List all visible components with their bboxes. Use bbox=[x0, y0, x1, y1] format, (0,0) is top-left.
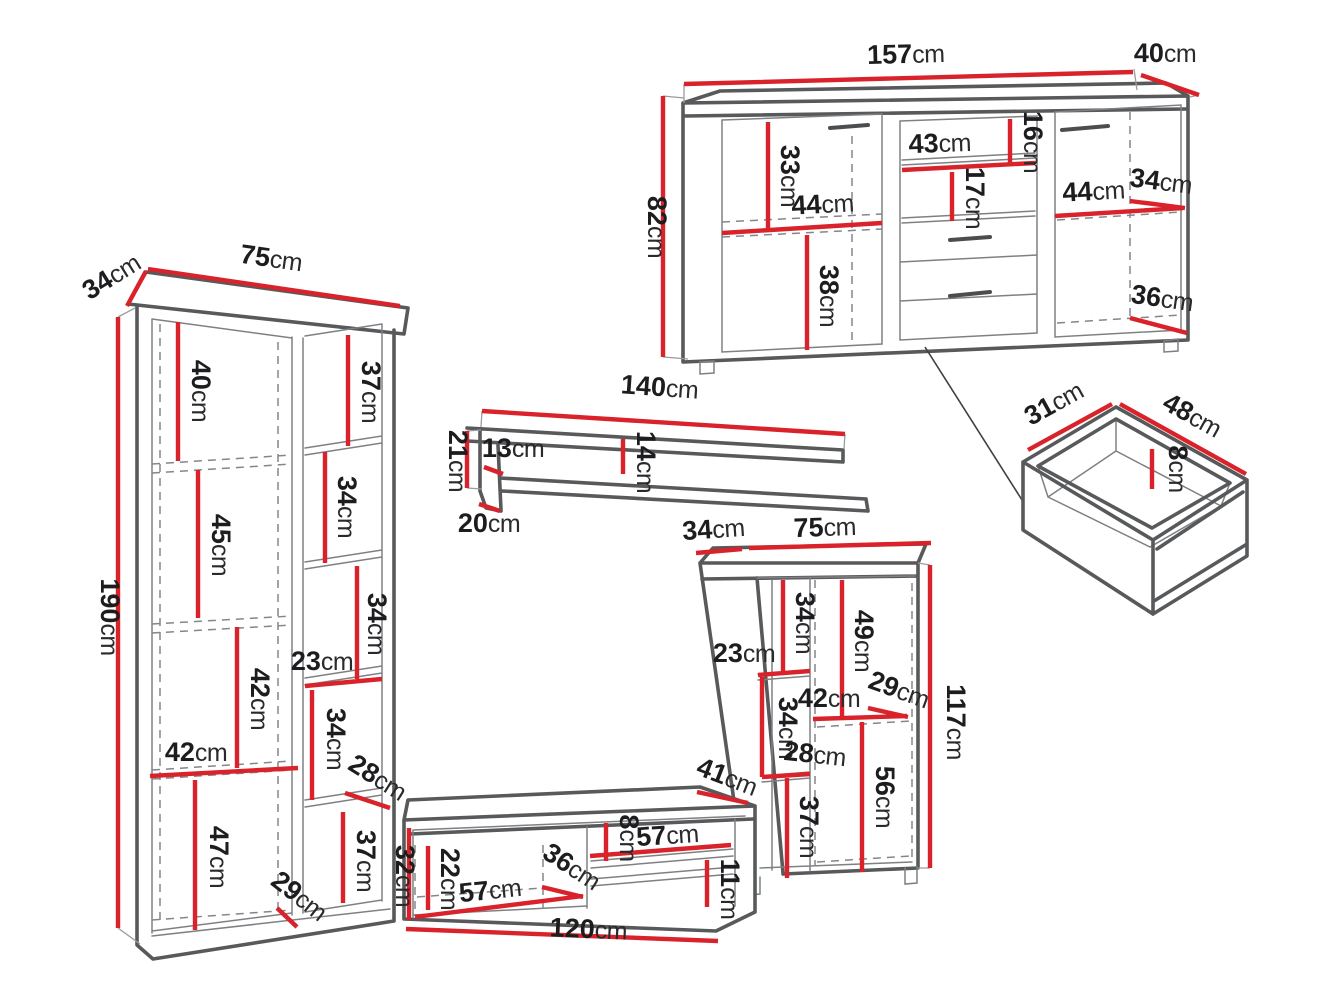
dim-sideboard-depth-top: 40cm bbox=[1134, 38, 1196, 68]
dim-bookcase-side-cell-3: 34cm bbox=[362, 593, 392, 655]
diagram-canvas: 157cm 40cm 82cm 33cm 44cm 38cm 43cm 16cm… bbox=[0, 0, 1341, 1006]
dim-tv-stand-width-bottom: 120cm bbox=[549, 912, 628, 945]
dim-cabinet-inner-width: 23cm bbox=[713, 638, 775, 668]
dim-sideboard-height-left: 82cm bbox=[642, 196, 672, 258]
sideboard-drawer-leader-line bbox=[925, 347, 1022, 500]
sideboard-face bbox=[683, 83, 1188, 362]
dim-sideboard-left-shelf-width: 44cm bbox=[791, 187, 855, 220]
dim-sideboard-middle-shelf-width: 43cm bbox=[908, 127, 971, 159]
dim-tv-stand-height-left: 32cm bbox=[390, 845, 420, 907]
dim-drawer-inner-height: 8cm bbox=[1163, 445, 1193, 492]
dim-cabinet-cell-2: 49cm bbox=[849, 610, 879, 672]
dim-bookcase-cell-3: 42cm bbox=[245, 668, 275, 730]
dim-bookcase-side-cell-4: 34cm bbox=[321, 708, 351, 770]
dim-wall-shelf-width-top: 140cm bbox=[620, 369, 699, 404]
dim-bookcase-shelf-width: 42cm bbox=[165, 737, 227, 767]
dim-cabinet-depth-top: 34cm bbox=[681, 512, 745, 546]
dim-cabinet-height-right: 117cm bbox=[941, 684, 971, 760]
dim-bookcase-cell-4: 47cm bbox=[204, 826, 234, 888]
dim-wall-shelf-board-gap: 14cm bbox=[631, 431, 661, 493]
dim-bookcase-width-top: 75cm bbox=[238, 239, 304, 277]
dim-cabinet-cell-1: 34cm bbox=[790, 592, 820, 654]
furniture-dimensions-diagram: 157cm 40cm 82cm 33cm 44cm 38cm 43cm 16cm… bbox=[0, 0, 1341, 1006]
dim-bookcase-cell-1: 40cm bbox=[186, 360, 216, 422]
dim-bookcase-side-cell-2: 34cm bbox=[332, 476, 362, 538]
dim-sideboard-left-lower: 38cm bbox=[814, 265, 844, 327]
dim-bookcase-side-cell-1: 37cm bbox=[356, 361, 386, 423]
dim-cabinet-shelf-width: 42cm bbox=[798, 683, 860, 713]
dim-bookcase-side-width: 23cm bbox=[291, 646, 353, 676]
dim-bookcase-side-cell-5: 37cm bbox=[351, 830, 381, 892]
dim-wall-shelf-height-left: 21cm bbox=[443, 430, 473, 492]
dim-wall-shelf-side-height: 13cm bbox=[482, 433, 544, 463]
tv-stand-drawing: 41cm 32cm 22cm 57cm 36cm 8cm 57cm 11cm 1… bbox=[390, 751, 762, 945]
dim-sideboard-right-shelf-width: 44cm bbox=[1062, 174, 1126, 207]
dim-cabinet-width-top: 75cm bbox=[793, 511, 856, 543]
dim-sideboard-middle-shelf-gap: 17cm bbox=[960, 167, 990, 229]
dim-sideboard-width-top: 157cm bbox=[867, 38, 945, 70]
dim-tv-stand-shelf-width: 57cm bbox=[635, 818, 699, 852]
dim-wall-shelf-depth-bottom: 20cm bbox=[458, 508, 520, 538]
dim-sideboard-middle-top-gap: 16cm bbox=[1018, 111, 1048, 173]
dim-cabinet-cell-5: 56cm bbox=[870, 766, 900, 828]
dim-cabinet-cell-4: 37cm bbox=[794, 796, 824, 858]
bookcase-drawing: 34cm 75cm 190cm 40cm 45cm 42cm 42cm 47cm… bbox=[77, 239, 412, 959]
dim-tv-stand-bottom-gap: 11cm bbox=[715, 859, 745, 920]
dim-bookcase-height-left: 190cm bbox=[95, 578, 125, 655]
drawer-drawing: 31cm 48cm 8cm bbox=[1019, 375, 1247, 614]
dim-bookcase-cell-2: 45cm bbox=[206, 514, 236, 576]
